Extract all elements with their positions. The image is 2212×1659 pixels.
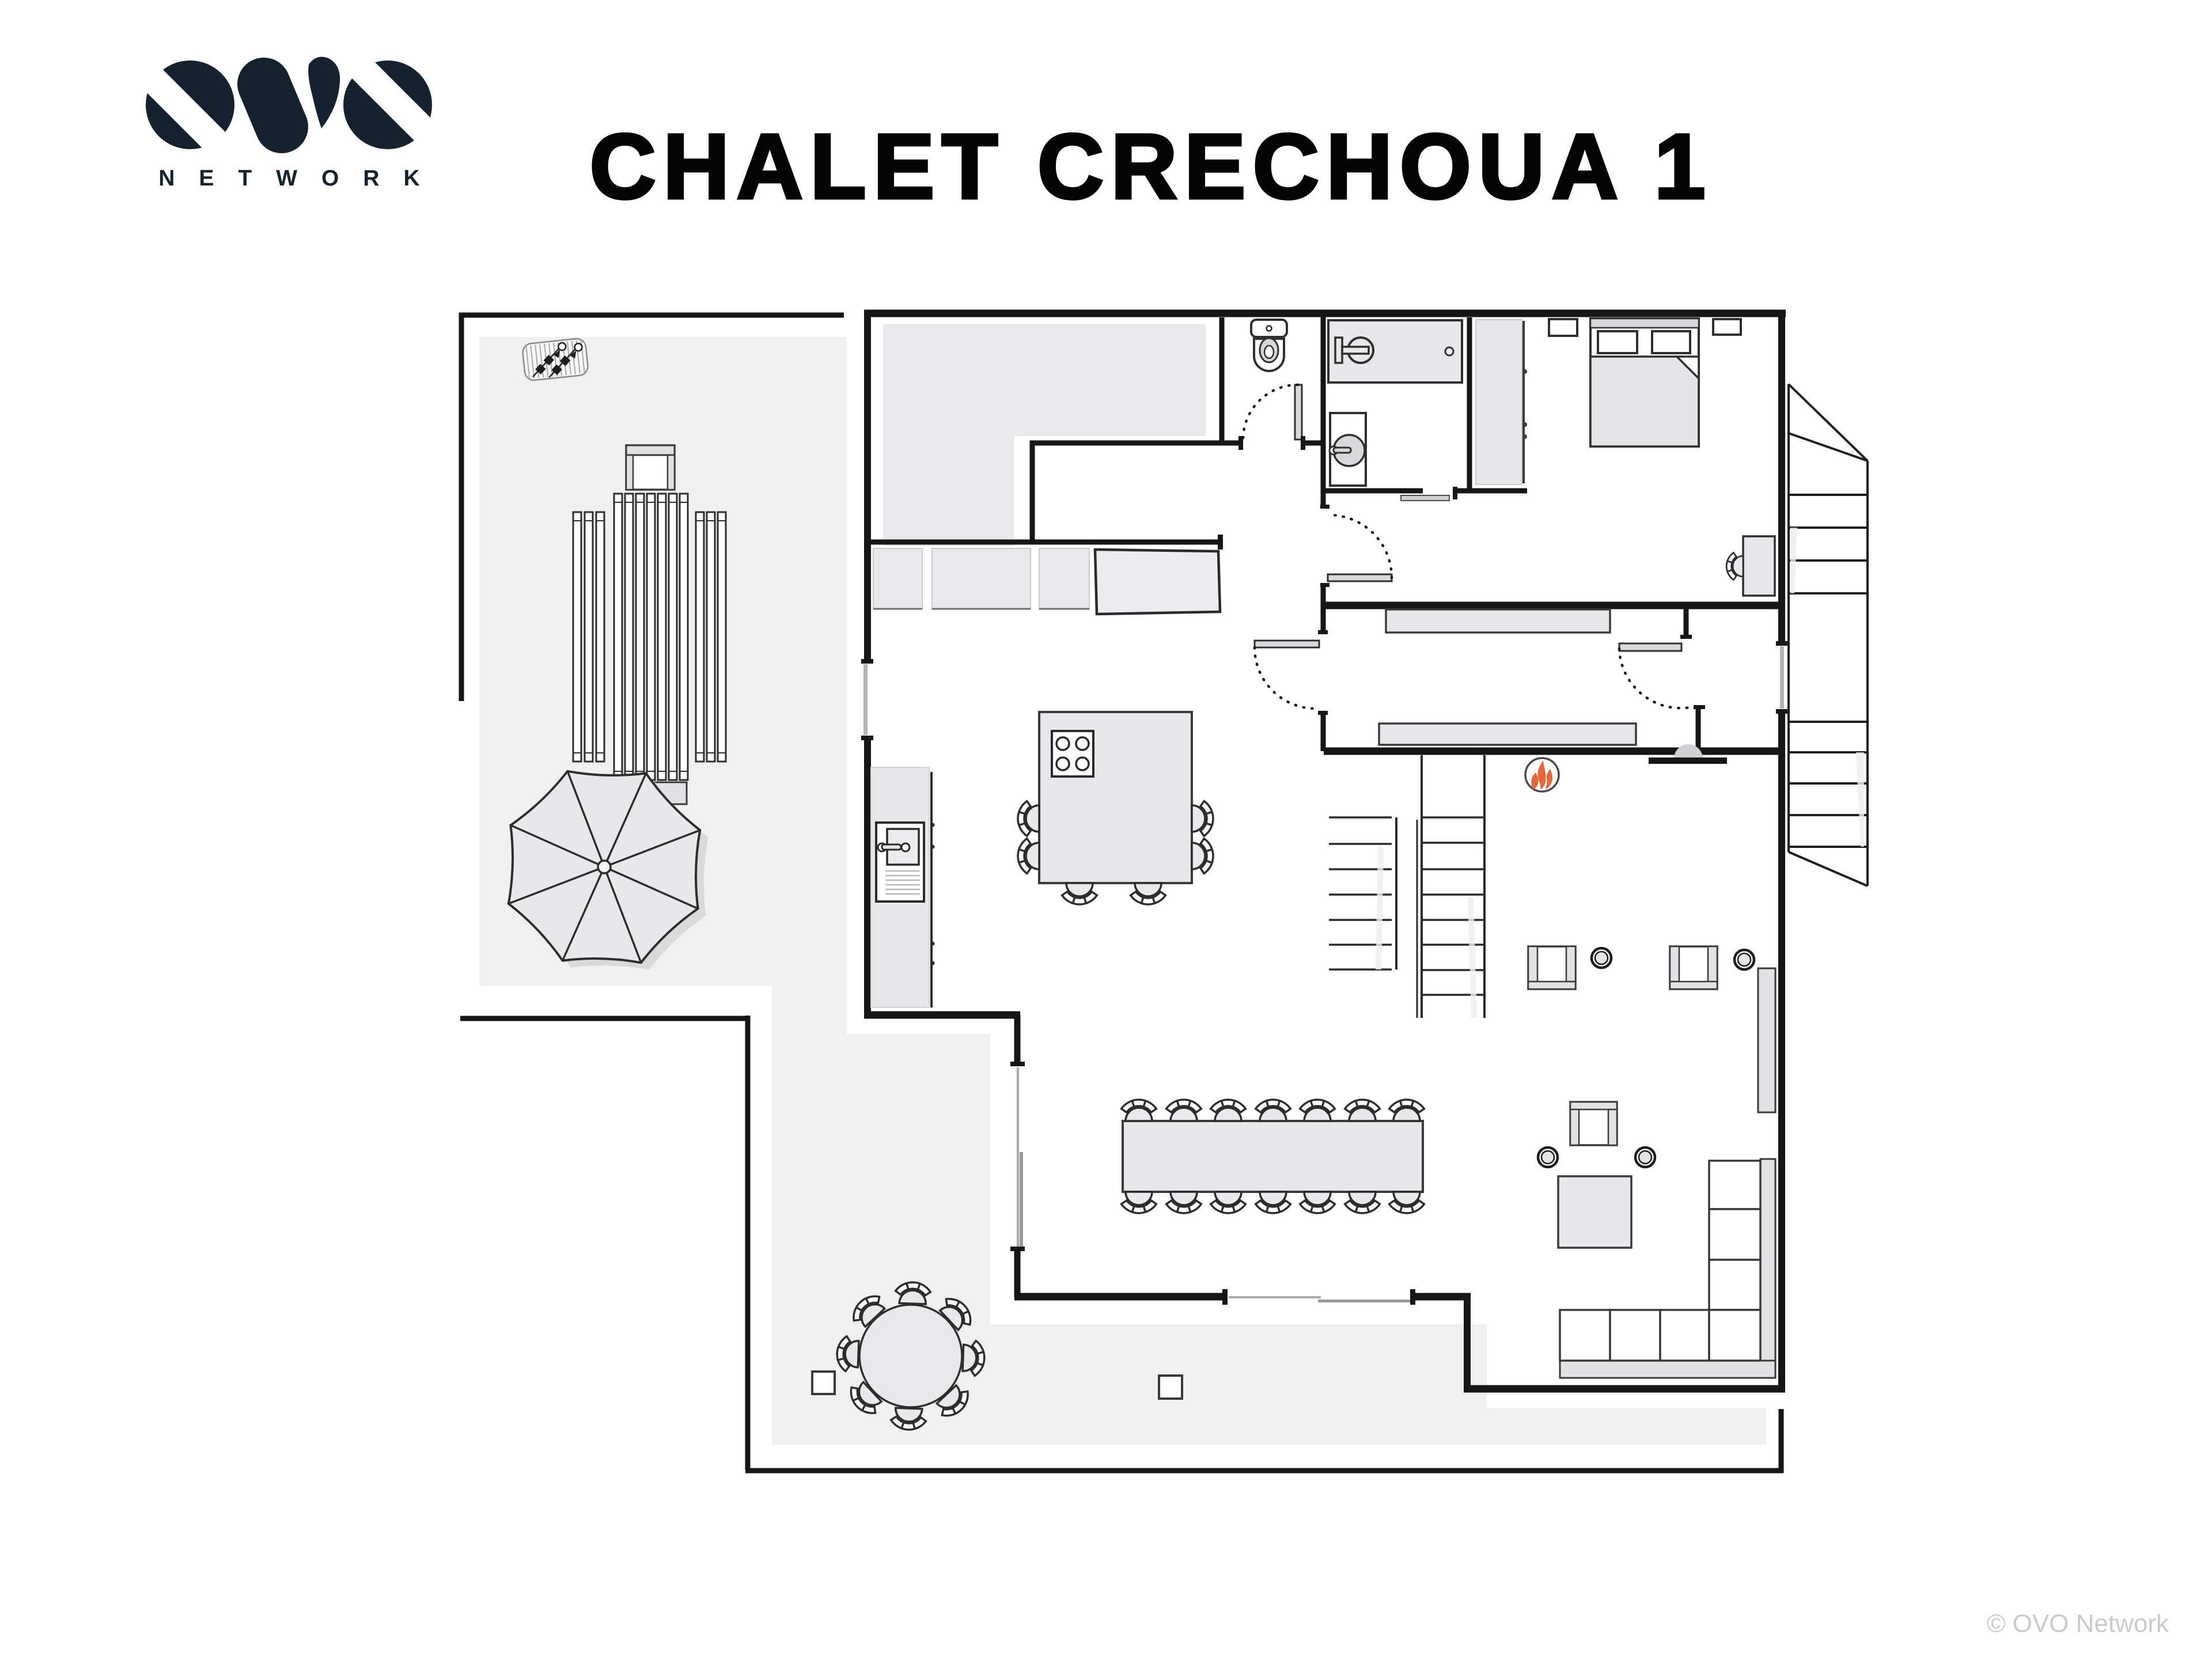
- svg-text:CHALET CRECHOUA 1: CHALET CRECHOUA 1: [589, 115, 1712, 218]
- svg-text:NETWORK: NETWORK: [158, 166, 444, 191]
- svg-text:© OVO Network: © OVO Network: [1987, 1609, 2169, 1638]
